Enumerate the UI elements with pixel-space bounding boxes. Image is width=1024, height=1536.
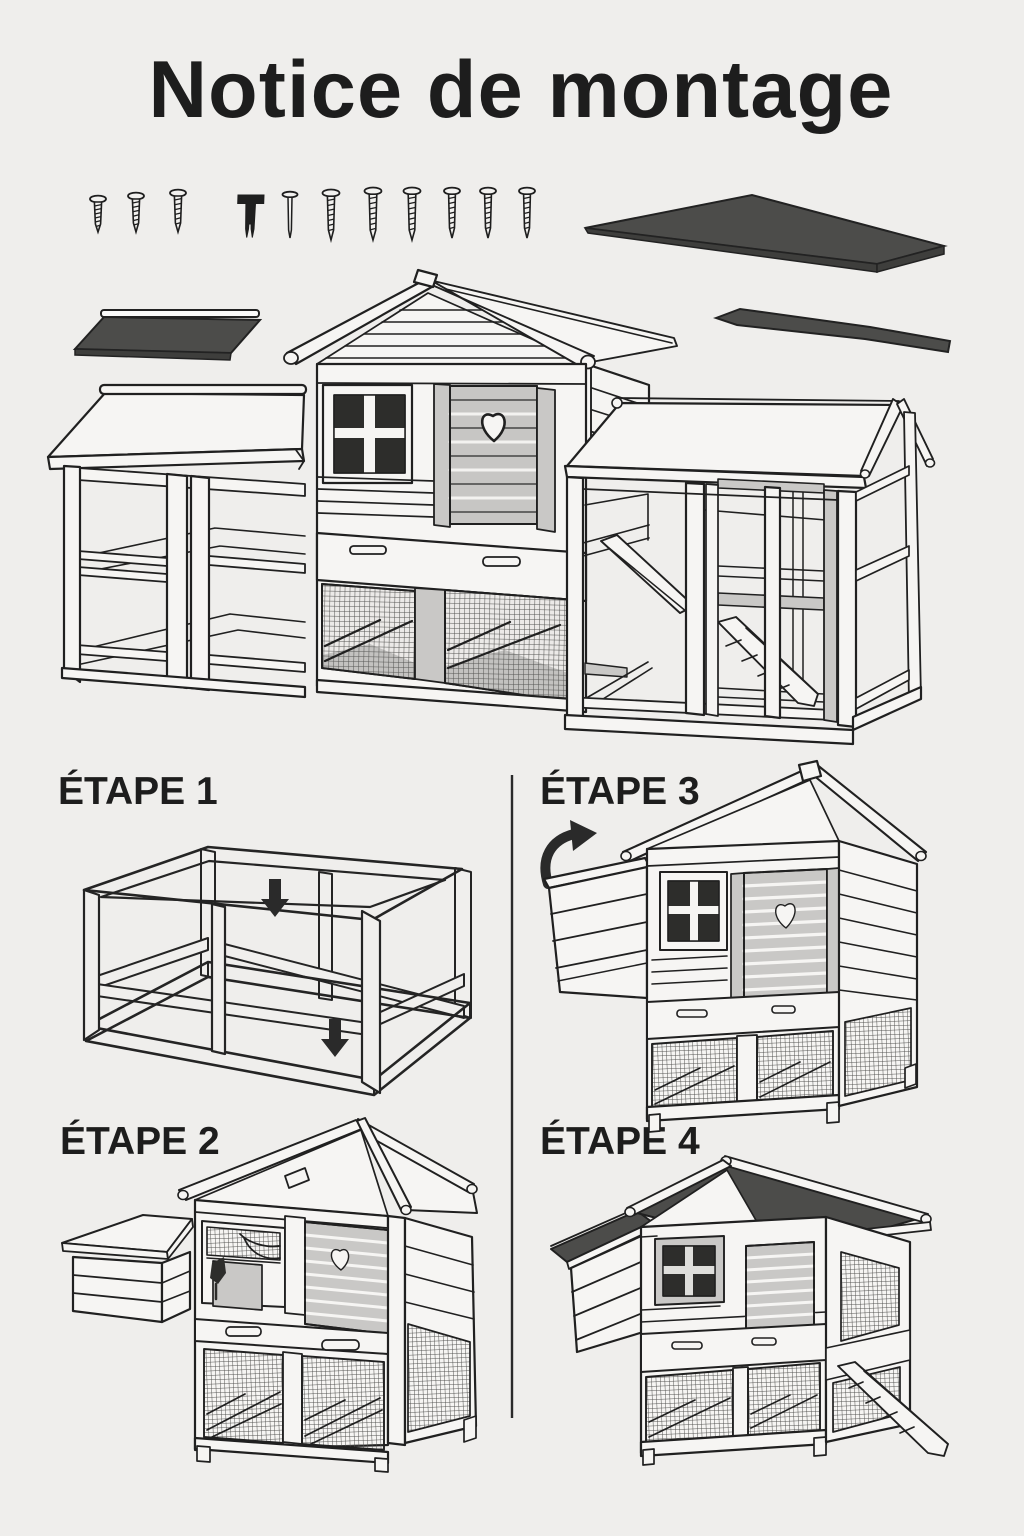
- svg-text:ÉTAPE 1: ÉTAPE 1: [58, 769, 218, 813]
- svg-text:Notice de montage: Notice de montage: [148, 45, 893, 135]
- svg-text:ÉTAPE 2: ÉTAPE 2: [60, 1119, 220, 1163]
- svg-text:ÉTAPE 4: ÉTAPE 4: [540, 1119, 700, 1163]
- svg-text:ÉTAPE 3: ÉTAPE 3: [540, 769, 700, 813]
